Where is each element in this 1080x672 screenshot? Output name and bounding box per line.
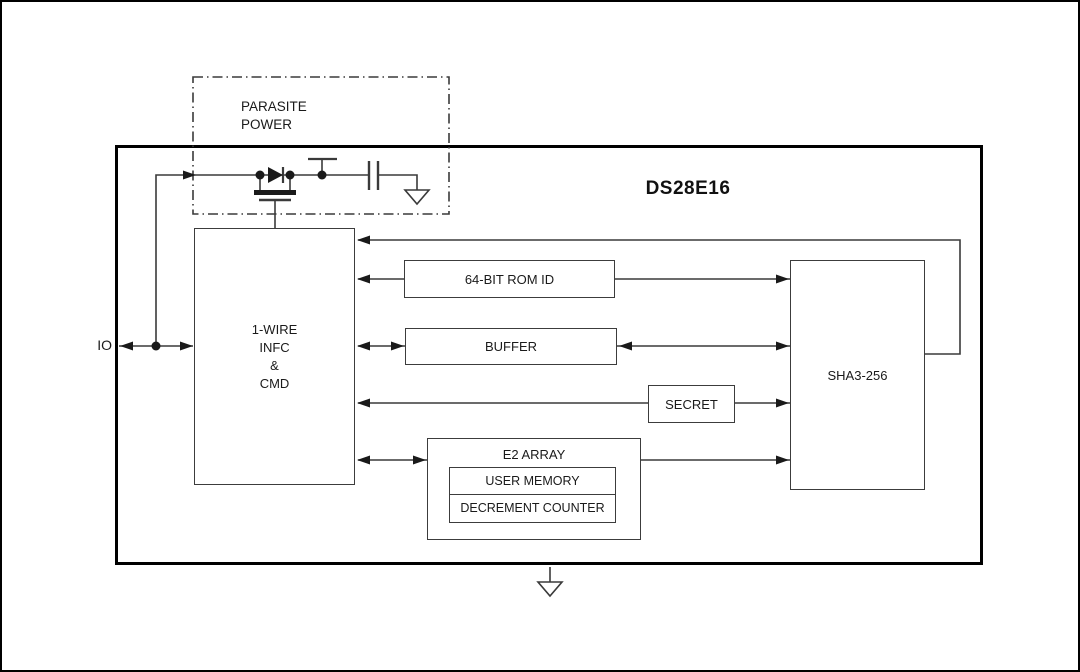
e2-array-rows: USER MEMORY DECREMENT COUNTER (449, 467, 616, 523)
secret-label: SECRET (665, 397, 718, 412)
sha3-256-label: SHA3-256 (828, 368, 888, 383)
e2-array-block: E2 ARRAY USER MEMORY DECREMENT COUNTER (427, 438, 641, 540)
chip-title: DS28E16 (582, 178, 794, 200)
e2-array-title: E2 ARRAY (428, 447, 640, 462)
secret-block: SECRET (648, 385, 735, 423)
one-wire-label-line3: & (270, 357, 279, 375)
decrement-counter-block: DECREMENT COUNTER (449, 494, 616, 523)
sha3-256-block: SHA3-256 (790, 260, 925, 490)
one-wire-label-line1: 1-WIRE (252, 321, 298, 339)
buffer-label: BUFFER (485, 339, 537, 354)
one-wire-label-line4: CMD (260, 375, 290, 393)
user-memory-block: USER MEMORY (449, 467, 616, 496)
ground-icon (538, 582, 562, 596)
rom-id-block: 64-BIT ROM ID (404, 260, 615, 298)
buffer-block: BUFFER (405, 328, 617, 365)
rom-id-label: 64-BIT ROM ID (465, 272, 554, 287)
one-wire-label-line2: INFC (259, 339, 289, 357)
diagram-canvas: DS28E16 IO PARASITE POWER 1-WIRE INFC & … (0, 0, 1080, 672)
parasite-power-label: PARASITE POWER (241, 98, 307, 134)
io-pin-label: IO (74, 337, 112, 353)
one-wire-infc-cmd-block: 1-WIRE INFC & CMD (194, 228, 355, 485)
